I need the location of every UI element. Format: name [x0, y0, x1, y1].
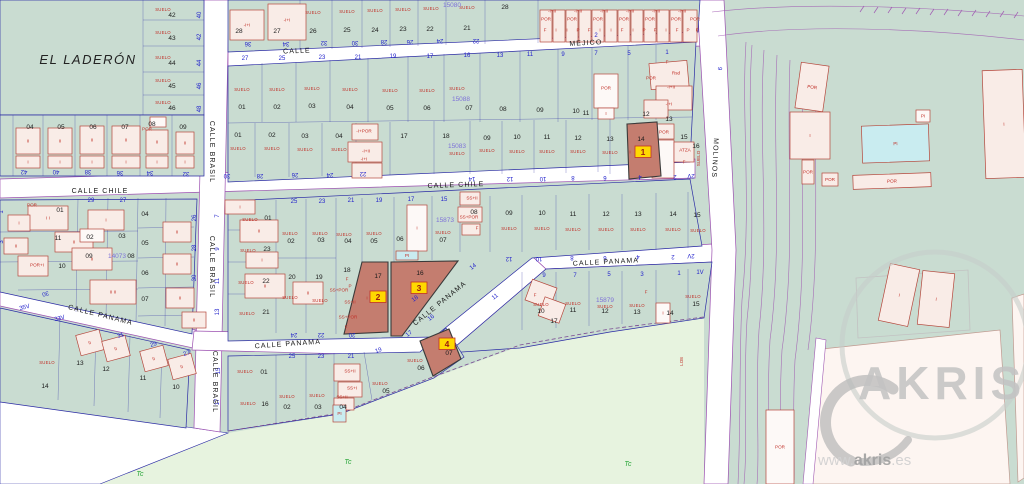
zone-code: 15873: [436, 217, 454, 224]
marker-label: 4: [445, 339, 450, 349]
street-number: 23: [319, 199, 326, 205]
land-use-label: -I+I: [361, 157, 368, 162]
suelo-label: SUELO: [602, 150, 618, 155]
suelo-label: SUELO: [509, 149, 525, 154]
street-number: 28: [380, 38, 387, 44]
street-number: 30: [223, 172, 230, 178]
parcel-number: 10: [538, 210, 546, 217]
parcel-number: 01: [264, 215, 272, 222]
parcel-number: 07: [465, 105, 473, 112]
parcel-number: 28: [501, 4, 509, 11]
parcel-number: 05: [57, 124, 65, 131]
parcel-number: 12: [102, 366, 110, 373]
parcel-number: 22: [426, 26, 434, 33]
building-label: II: [176, 262, 179, 267]
land-use-label: P: [686, 28, 689, 33]
building-label: I: [18, 221, 19, 226]
street-number: 22: [359, 170, 366, 176]
suelo-label: SUELO: [237, 369, 253, 374]
parcel-number: 45: [168, 83, 176, 90]
parcel-number: 07: [439, 237, 447, 244]
suelo-label: SUELO: [282, 231, 298, 236]
parcel-number: 11: [570, 211, 577, 218]
land-use-label: I: [632, 28, 633, 33]
building: [644, 10, 656, 42]
parcel-number: 14: [666, 310, 674, 317]
land-use-label: -I+I: [244, 23, 251, 28]
building: [631, 10, 643, 42]
street-number: 29: [88, 198, 95, 204]
street-number: 11: [527, 52, 534, 58]
parcel-number: 01: [56, 207, 64, 214]
building-label: I: [27, 160, 28, 165]
parcel-number: 19: [315, 274, 323, 281]
parcel-number: 09: [483, 135, 491, 142]
land-use-label: ATZA: [679, 148, 691, 153]
street-number: 27: [120, 198, 127, 204]
parcel-number: 03: [314, 404, 322, 411]
suelo-label: SUELO: [407, 358, 423, 363]
street-number: 28: [256, 172, 263, 178]
street-number: 26: [406, 38, 413, 44]
land-use-label: SS+POR: [339, 315, 358, 320]
street-name: CALLE CHILE: [72, 188, 129, 195]
suelo-label: SUELO: [366, 231, 382, 236]
street-number: 15: [441, 197, 448, 203]
land-use-label: POR: [671, 17, 682, 22]
land-use-label: F: [654, 28, 657, 33]
suelo-label: SUELO: [690, 228, 706, 233]
parcel-number: 23: [399, 26, 407, 33]
street-number: 1V: [696, 270, 703, 276]
building-label: I: [416, 226, 417, 231]
parcel-number: 07: [121, 124, 129, 131]
land-use-label: SS+POR: [460, 215, 479, 220]
land-use-label: -I+II: [667, 85, 675, 90]
parcel-number: 46: [168, 105, 176, 112]
street-number: 2V: [687, 252, 694, 258]
parcel-number: 08: [127, 253, 135, 260]
land-use-label: -I+I: [284, 18, 291, 23]
parcel-number: 06: [396, 236, 404, 243]
parcel-number: 11: [583, 110, 590, 117]
street-number: 25: [279, 56, 286, 62]
suelo-label: SUELO: [155, 30, 171, 35]
street-number: 12: [506, 175, 513, 181]
suelo-label: SUELO: [234, 87, 250, 92]
building-label: I: [105, 218, 106, 223]
parcel-number: 12: [574, 135, 582, 142]
street-number: 13: [215, 308, 221, 315]
street-number: 42: [20, 168, 27, 174]
parcel-number: 07: [445, 350, 453, 357]
building: [540, 10, 552, 42]
suelo-label: SUELO: [395, 7, 411, 12]
street-number: 16: [464, 53, 471, 59]
parcel-number: 02: [287, 238, 295, 245]
parcel-number: 03: [317, 237, 325, 244]
parcel-number: 18: [343, 267, 351, 274]
parcel-number: 04: [339, 404, 347, 411]
building: [683, 10, 697, 42]
parcel-number: 16: [416, 270, 424, 277]
street-number: 22: [317, 331, 324, 337]
terrain-label: Tc: [344, 459, 352, 466]
land-use-label: I: [366, 296, 367, 301]
building-label: II: [15, 244, 18, 249]
land-use-label: POR: [567, 17, 578, 22]
suelo-label: SUELO: [367, 8, 383, 13]
parcel-number: 13: [76, 360, 84, 367]
suelo-label: SUELO: [312, 298, 328, 303]
suelo-label: SUELO: [565, 227, 581, 232]
building: [670, 10, 682, 42]
building-label: I: [1003, 122, 1004, 127]
zone-code: 15083: [448, 143, 466, 150]
land-use-label: I: [599, 28, 600, 33]
parcel-number: 08: [499, 106, 507, 113]
building-label: PI: [337, 411, 341, 416]
parcel-number: 13: [665, 116, 673, 123]
suelo-label: SUELO: [155, 78, 171, 83]
building-label: POR: [803, 170, 814, 175]
suelo-label: SUELO: [279, 394, 295, 399]
parcel-number: 44: [168, 60, 176, 67]
land-use-label: I: [566, 28, 567, 33]
street-number: 24: [290, 331, 297, 337]
land-use-label: F: [645, 290, 648, 295]
land-use-label: -I+II: [574, 9, 582, 14]
block: [228, 42, 696, 182]
land-use-label: F: [345, 325, 348, 330]
parcel-number: 01: [238, 104, 246, 111]
parcel-number: 04: [335, 133, 343, 140]
street-number: 25: [291, 199, 298, 205]
suelo-label: SUELO: [230, 146, 246, 151]
land-use-label: -I+II: [362, 149, 370, 154]
parcel-number: 21: [262, 309, 270, 316]
street-number: 40: [197, 11, 203, 18]
land-use-label: POR: [659, 130, 670, 135]
land-use-label: F: [666, 60, 669, 65]
building-label: II: [156, 140, 159, 145]
land-use-label: POR: [645, 17, 656, 22]
parcel-number: 10: [572, 108, 580, 115]
street-number: 21: [348, 354, 355, 360]
parcel-number: 20: [288, 274, 296, 281]
parcel-number: 17: [400, 133, 408, 140]
suelo-label: SUELO: [534, 226, 550, 231]
street-number: 13: [497, 53, 504, 59]
street-number: 24: [326, 171, 333, 177]
parcel-number: 27: [273, 28, 281, 35]
parcel-number: 06: [417, 365, 425, 372]
parcel-number: 06: [423, 105, 431, 112]
street-name: CALLE BRASIL: [208, 121, 215, 183]
parcel-number: 10: [537, 308, 545, 315]
street-name: CALLE BRASIL: [211, 351, 218, 413]
suelo-label: SUELO: [155, 55, 171, 60]
parcel-number: 22: [262, 278, 270, 285]
land-use-label: POR: [619, 17, 630, 22]
suelo-label: SUELO: [155, 7, 171, 12]
suelo-label: SUELO: [239, 311, 255, 316]
suelo-label: SUELO: [342, 87, 358, 92]
land-use-label: SUELO: [696, 150, 701, 166]
land-use-label: POR+I: [30, 263, 44, 268]
marker-label: 3: [417, 283, 422, 293]
parcel-number: 09: [536, 107, 544, 114]
suelo-label: SUELO: [449, 151, 465, 156]
suelo-label: SUELO: [39, 360, 55, 365]
zone-code: 15088: [452, 96, 470, 103]
parcel-number: 17: [374, 273, 382, 280]
land-use-label: Rsd: [672, 71, 681, 76]
suelo-label: SUELO: [155, 100, 171, 105]
suelo-label: SUELO: [533, 302, 549, 307]
street-number: 34: [282, 40, 289, 46]
building-label: I: [91, 160, 92, 165]
zone-code: 15879: [596, 297, 614, 304]
land-use-label: P: [348, 284, 351, 289]
land-use-label: SS+II: [336, 395, 347, 400]
parcel-number: 13: [606, 136, 614, 143]
building-label: I: [156, 160, 157, 165]
land-use-label: I: [629, 150, 630, 155]
parcel-number: 05: [141, 240, 149, 247]
street-number: 30: [351, 39, 358, 45]
suelo-label: SUELO: [312, 231, 328, 236]
land-use-label: F: [588, 28, 591, 33]
street-number: 14: [468, 175, 475, 181]
suelo-label: SUELO: [382, 88, 398, 93]
street-number: 19: [376, 198, 383, 204]
building: [579, 10, 591, 42]
land-use-label: POR: [27, 203, 38, 208]
land-use-label: LO8: [679, 357, 684, 366]
parcel-number: 06: [89, 124, 97, 131]
land-use-label: F: [696, 28, 699, 33]
suelo-label: SUELO: [539, 149, 555, 154]
building-label: PI: [921, 114, 925, 119]
street-number: 27: [242, 56, 249, 62]
land-use-label: -I+II: [626, 9, 634, 14]
parcel-number: 28: [235, 28, 243, 35]
parcel-number: 12: [642, 111, 650, 118]
street-number: 10: [539, 175, 546, 181]
street-number: 21: [355, 55, 362, 61]
suelo-label: SUELO: [419, 88, 435, 93]
suelo-label: SUELO: [435, 230, 451, 235]
street-number: 12: [505, 255, 512, 261]
land-use-label: SS+II: [466, 196, 477, 201]
building-label: I: [184, 160, 185, 165]
land-use-label: P: [642, 28, 645, 33]
parcel-number: 42: [168, 12, 176, 19]
parcel-number: 14: [41, 383, 49, 390]
land-use-label: SS+POR: [330, 288, 349, 293]
land-use-label: -I+II: [548, 9, 556, 14]
street-number: 36: [244, 40, 251, 46]
parcel-number: 21: [463, 25, 471, 32]
zone-code: 15080: [443, 2, 461, 9]
parcel-number: 06: [141, 270, 149, 277]
suelo-label: SUELO: [305, 10, 321, 15]
parcel-number: 03: [301, 133, 309, 140]
parcel-number: 01: [260, 369, 268, 376]
parcel-number: 04: [346, 104, 354, 111]
land-use-label: POR: [601, 86, 612, 91]
parcel-number: 12: [602, 211, 610, 218]
building-label: I: [261, 258, 262, 263]
suelo-label: SUELO: [372, 381, 388, 386]
suelo-label: SUELO: [269, 87, 285, 92]
street-number: 26: [192, 214, 198, 221]
land-use-label: SS+II: [344, 300, 355, 305]
street-number: 32: [320, 39, 327, 45]
suelo-label: SUELO: [331, 147, 347, 152]
land-use-label: POR: [646, 76, 657, 81]
suelo-label: SUELO: [339, 9, 355, 14]
parcel-number: 10: [513, 134, 521, 141]
land-use-label: F: [621, 28, 624, 33]
building-label: PI: [405, 253, 409, 258]
parcel-number: 02: [283, 404, 291, 411]
parcel-number: 02: [273, 104, 281, 111]
land-use-label: I: [665, 28, 666, 33]
parcel-number: 11: [140, 375, 147, 382]
parcel-number: 05: [370, 238, 378, 245]
parcel-number: 15: [693, 212, 701, 219]
building: [605, 10, 617, 42]
parcel-number: 09: [179, 124, 187, 131]
suelo-label: SUELO: [598, 227, 614, 232]
suelo-label: SUELO: [304, 86, 320, 91]
suelo-label: SUELO: [501, 226, 517, 231]
parcel-number: 04: [141, 211, 149, 218]
land-use-label: -I+I: [666, 102, 673, 107]
land-use-label: -I+II: [678, 9, 686, 14]
suelo-label: SUELO: [449, 86, 465, 91]
land-use-label: -I+II: [600, 9, 608, 14]
parcel-number: 03: [118, 233, 126, 240]
land-use-label: F: [676, 28, 679, 33]
building-label: I: [662, 311, 663, 316]
building-label: II: [125, 138, 128, 143]
building-label: II: [91, 138, 94, 143]
building: [594, 74, 618, 108]
parcel-number: 11: [570, 307, 577, 314]
building-label: II: [73, 240, 76, 245]
street-number: 34: [146, 169, 153, 175]
land-use-label: F: [476, 226, 479, 231]
parcel-number: 17: [550, 318, 558, 325]
parcel-number: 01: [234, 132, 242, 139]
street-number: 17: [427, 54, 434, 60]
street-number: 23: [319, 55, 326, 61]
parcel-number: 13: [634, 211, 642, 218]
street-number: 2V: [687, 172, 694, 178]
building-label: II II: [110, 290, 116, 295]
suelo-label: SUELO: [238, 280, 254, 285]
parcel-number: 24: [371, 27, 379, 34]
parcel-number: 05: [386, 105, 394, 112]
land-use-label: -I+POR: [356, 129, 372, 134]
parcel-number: 02: [268, 132, 276, 139]
suelo-label: SUELO: [264, 146, 280, 151]
street-number: 22: [472, 37, 479, 43]
marker-label: 2: [376, 292, 381, 302]
parcel-number: 04: [344, 238, 352, 245]
parcel-number: 04: [26, 124, 34, 131]
street-number: 25: [289, 354, 296, 360]
building-label: II: [59, 139, 62, 144]
land-use-label: SS+II: [344, 369, 355, 374]
suelo-label: SUELO: [336, 232, 352, 237]
suelo-label: SUELO: [282, 295, 298, 300]
building-label: II: [179, 296, 182, 301]
building-label: I I: [46, 216, 50, 221]
land-use-label: I: [555, 28, 556, 33]
street-name: CALLE BRASIL: [208, 236, 215, 298]
building-label: II: [193, 318, 196, 323]
street-number: 48: [197, 105, 203, 112]
land-use-label: F: [544, 28, 547, 33]
parcel-number: 10: [172, 384, 180, 391]
building-label: PI: [893, 141, 898, 146]
suelo-label: SUELO: [570, 149, 586, 154]
street-number: 26: [291, 171, 298, 177]
building-label: I: [125, 160, 126, 165]
parcel-number: 11: [55, 235, 62, 242]
street-number: 30: [192, 274, 198, 281]
street-number: 19: [390, 54, 397, 60]
street-number: 36: [116, 169, 123, 175]
building-label: POR: [825, 177, 836, 182]
parcel-number: 14: [637, 136, 645, 143]
land-use-label: F: [683, 160, 686, 165]
parcel-number: 14: [669, 211, 677, 218]
building: [618, 10, 630, 42]
suelo-label: SUELO: [630, 227, 646, 232]
street-number: 17: [408, 197, 415, 203]
suelo-label: SUELO: [240, 248, 256, 253]
parcel-number: 11: [544, 134, 551, 141]
street-number: 10: [535, 255, 542, 261]
street-number: 23: [318, 354, 325, 360]
parcel-number: 03: [308, 103, 316, 110]
land-use-label: I: [610, 28, 611, 33]
parcel-number: 09: [505, 210, 513, 217]
parcel-number: 25: [343, 27, 351, 34]
building-label: I: [59, 160, 60, 165]
building-label: II: [27, 139, 30, 144]
street-number: 40: [52, 168, 59, 174]
suelo-label: SUELO: [479, 148, 495, 153]
terrain-label: Tc: [136, 471, 144, 478]
parcel-number: 16: [261, 401, 269, 408]
suelo-label: SUELO: [309, 393, 325, 398]
street-number: 42: [197, 33, 203, 40]
building-label: II: [184, 141, 187, 146]
street-number: 20: [348, 331, 355, 337]
street-number: 32: [182, 170, 189, 176]
parcel-number: 02: [86, 234, 94, 241]
parcel-number: 12: [601, 308, 609, 315]
suelo-label: SUELO: [665, 227, 681, 232]
parcel-number: 15: [680, 134, 688, 141]
suelo-label: SUELO: [565, 301, 581, 306]
